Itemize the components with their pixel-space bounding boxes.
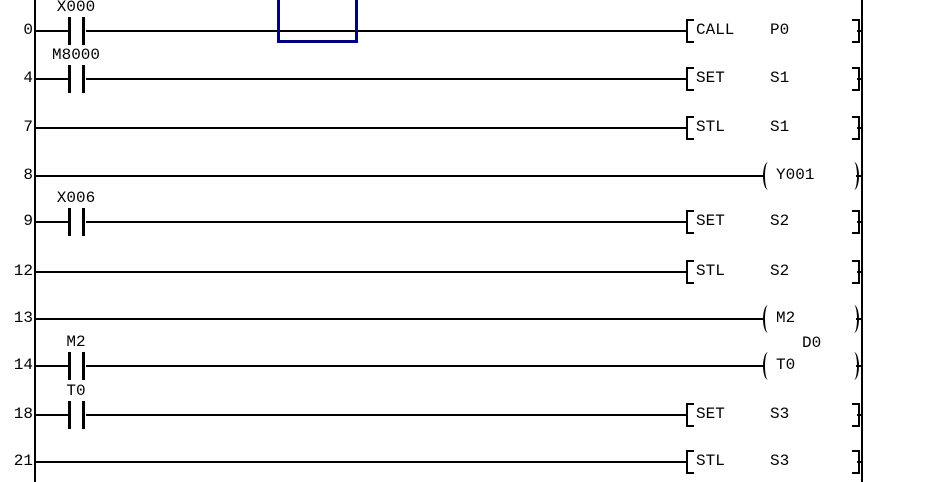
contact-label: X006 [40, 191, 112, 206]
wire-stub [856, 318, 862, 320]
wire [86, 78, 686, 80]
instruction-operand: S3 [770, 453, 789, 469]
coil-name: M2 [776, 310, 795, 326]
wire-stub [857, 127, 862, 129]
contact-bar-right-icon [82, 65, 85, 93]
instruction-operand: S1 [770, 70, 789, 86]
wire [86, 365, 763, 367]
wire-stub [857, 414, 862, 416]
wire [36, 461, 686, 463]
contact-label: M8000 [40, 48, 112, 63]
open-bracket-icon [686, 210, 694, 234]
instruction-name: STL [696, 119, 725, 135]
ladder-editor-canvas[interactable]: 0 X000 CALL P0 4 M8000 SET S1 [0, 0, 944, 482]
instruction-operand: P0 [770, 22, 789, 38]
instruction-operand: S2 [770, 213, 789, 229]
step-number: 12 [0, 263, 33, 279]
step-number: 18 [0, 406, 33, 422]
instruction-name: STL [696, 453, 725, 469]
step-number: 13 [0, 310, 33, 326]
instruction-name: SET [696, 70, 725, 86]
contact-label: X000 [40, 0, 112, 15]
wire-stub [857, 461, 862, 463]
open-bracket-icon [686, 403, 694, 427]
contact-bar-right-icon [82, 401, 85, 429]
wire [86, 414, 686, 416]
wire-stub [856, 175, 862, 177]
wire [36, 127, 686, 129]
step-number: 8 [0, 167, 33, 183]
open-bracket-icon [686, 67, 694, 91]
wire [36, 221, 69, 223]
step-number: 14 [0, 357, 33, 373]
wire-stub [857, 271, 862, 273]
instruction-name: STL [696, 263, 725, 279]
instruction-operand: S1 [770, 119, 789, 135]
selection-cursor[interactable] [277, 0, 358, 43]
wire [86, 221, 686, 223]
contact-bar-left-icon [68, 65, 71, 93]
step-number: 4 [0, 70, 33, 86]
instruction-name: SET [696, 213, 725, 229]
coil-open-paren-icon [763, 352, 773, 380]
contact-bar-left-icon [68, 208, 71, 236]
contact-bar-right-icon [82, 17, 85, 45]
coil-name: Y001 [776, 167, 814, 183]
wire [36, 365, 69, 367]
instruction-name: SET [696, 406, 725, 422]
wire [36, 175, 763, 177]
right-power-rail [861, 0, 863, 482]
wire-stub [857, 30, 862, 32]
wire [36, 414, 69, 416]
open-bracket-icon [686, 19, 694, 43]
wire [86, 30, 686, 32]
instruction-operand: S2 [770, 263, 789, 279]
coil-open-paren-icon [763, 305, 773, 333]
wire [36, 30, 69, 32]
instruction-name: CALL [696, 22, 734, 38]
coil-name: T0 [776, 357, 795, 373]
contact-label: M2 [40, 335, 112, 350]
step-number: 9 [0, 213, 33, 229]
step-number: 21 [0, 453, 33, 469]
instruction-operand: S3 [770, 406, 789, 422]
contact-bar-left-icon [68, 352, 71, 380]
open-bracket-icon [686, 260, 694, 284]
contact-bar-right-icon [82, 208, 85, 236]
contact-bar-right-icon [82, 352, 85, 380]
wire-stub [857, 221, 862, 223]
contact-label: T0 [40, 384, 112, 399]
left-power-rail [34, 0, 36, 482]
open-bracket-icon [686, 450, 694, 474]
timer-setpoint-label: D0 [802, 335, 821, 351]
step-number: 7 [0, 119, 33, 135]
wire [36, 271, 686, 273]
coil-open-paren-icon [763, 162, 773, 190]
wire [36, 78, 69, 80]
wire-stub [856, 365, 862, 367]
wire-stub [857, 78, 862, 80]
wire [36, 318, 763, 320]
open-bracket-icon [686, 116, 694, 140]
contact-bar-left-icon [68, 17, 71, 45]
contact-bar-left-icon [68, 401, 71, 429]
step-number: 0 [0, 22, 33, 38]
